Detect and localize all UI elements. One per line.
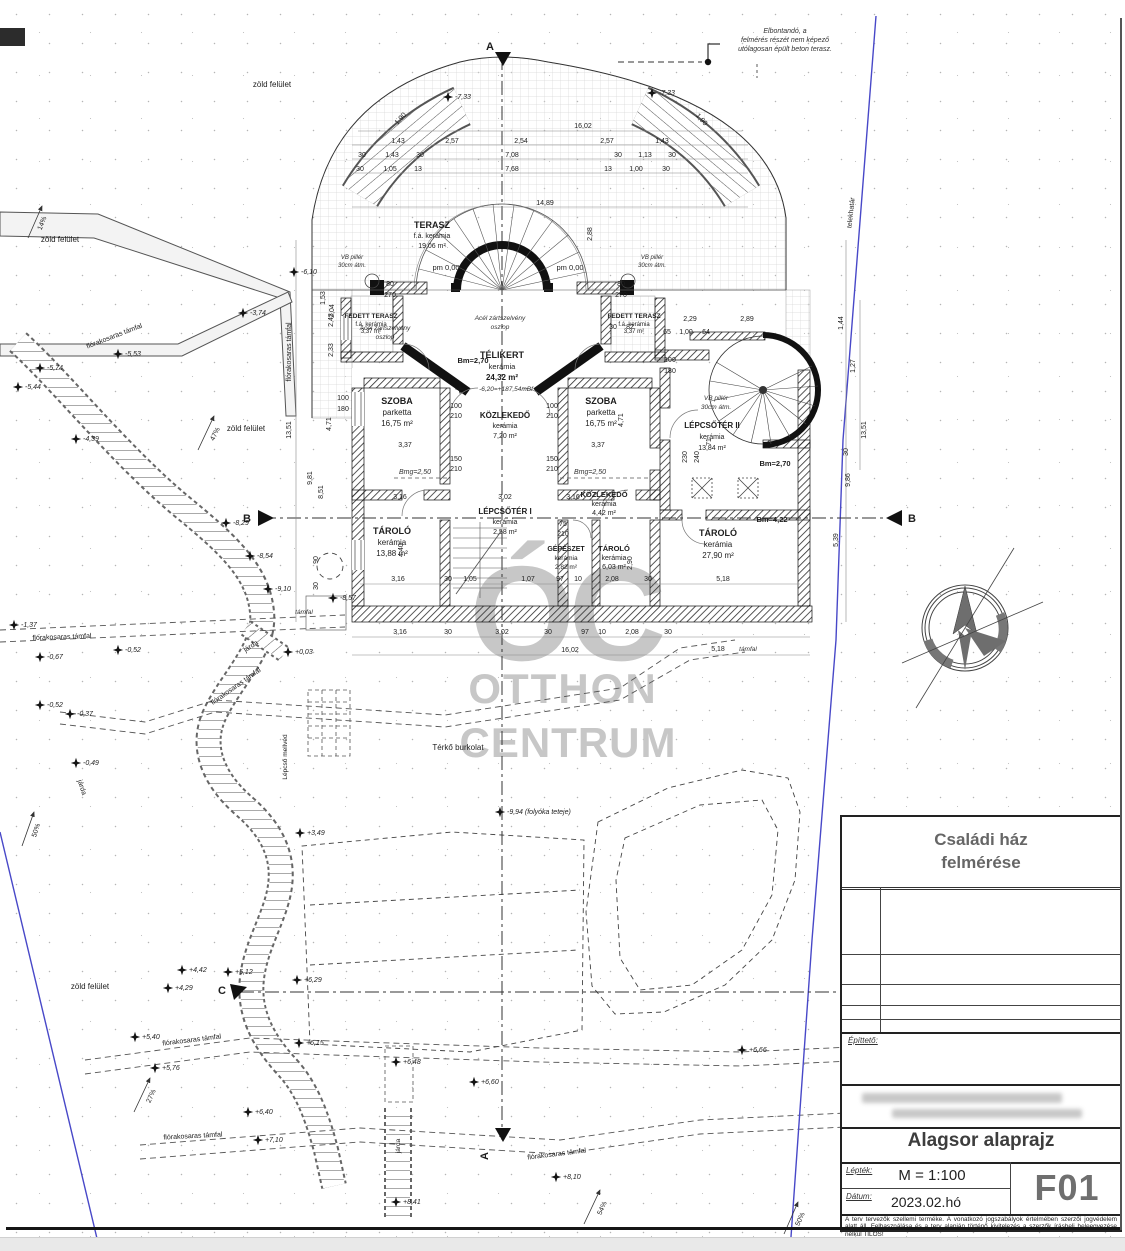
svg-text:71: 71 <box>706 438 713 446</box>
redacted-stamp <box>862 1093 1062 1103</box>
svg-text:4,40: 4,40 <box>398 543 405 557</box>
svg-text:-5,44: -5,44 <box>25 384 41 391</box>
pm-level: pm 0,00 <box>432 263 459 272</box>
site-label-jarda: járda <box>75 778 87 796</box>
room-label-tarolo3: TÁROLÓ kerámia 27,90 m² <box>699 527 737 560</box>
vb-pillar-note: 30cm átm. <box>638 263 666 269</box>
svg-text:A: A <box>479 1152 491 1160</box>
svg-text:3,16: 3,16 <box>393 629 407 636</box>
svg-text:5,39: 5,39 <box>833 533 840 547</box>
site-label-zold: zöld felület <box>253 80 292 89</box>
svg-text:10: 10 <box>574 576 582 583</box>
svg-text:+6,29: +6,29 <box>304 977 322 984</box>
svg-text:75: 75 <box>559 521 567 528</box>
svg-text:1,27: 1,27 <box>850 359 857 373</box>
svg-text:-0,52: -0,52 <box>47 702 63 709</box>
svg-text:+4,42: +4,42 <box>189 967 207 974</box>
steel-column-note: oszlop <box>376 334 395 341</box>
site-label-flora: flórakosaras támfal <box>162 1033 222 1047</box>
project-title-line1: Családi ház <box>934 829 1028 852</box>
svg-text:1,44: 1,44 <box>838 316 845 330</box>
svg-text:+7,10: +7,10 <box>265 1137 283 1144</box>
svg-text:1,13: 1,13 <box>638 152 652 159</box>
svg-text:4,42 m²: 4,42 m² <box>592 510 616 517</box>
svg-text:210: 210 <box>450 413 462 420</box>
site-label-zold: zöld felület <box>71 982 110 991</box>
svg-text:16,75 m²: 16,75 m² <box>585 419 617 428</box>
svg-text:30: 30 <box>662 166 670 173</box>
svg-text:24,32 m²: 24,32 m² <box>486 373 518 382</box>
svg-text:210: 210 <box>546 413 558 420</box>
svg-text:9,81: 9,81 <box>307 471 314 485</box>
scale-label: Lépték: <box>846 1166 872 1175</box>
svg-text:-4,39: -4,39 <box>83 436 99 443</box>
svg-text:1,43: 1,43 <box>385 152 399 159</box>
svg-text:64: 64 <box>702 329 710 336</box>
site-label-zold: zöld felület <box>41 235 80 244</box>
svg-text:SZOBA: SZOBA <box>585 396 617 406</box>
svg-text:+8,10: +8,10 <box>563 1174 581 1181</box>
svg-text:7,20 m²: 7,20 m² <box>493 433 517 440</box>
svg-text:30: 30 <box>668 152 676 159</box>
svg-text:-1,37: -1,37 <box>21 622 38 629</box>
svg-text:+5,40: +5,40 <box>142 1034 160 1041</box>
svg-text:6,03 m²: 6,03 m² <box>602 564 626 571</box>
room-label-tarolo2: TÁROLÓ kerámia 6,03 m² <box>598 544 630 571</box>
svg-text:2,54: 2,54 <box>514 138 528 145</box>
svg-text:7,08: 7,08 <box>505 152 519 159</box>
svg-text:1,00: 1,00 <box>629 166 643 173</box>
svg-text:FEDETT TERASZ: FEDETT TERASZ <box>607 313 660 320</box>
svg-text:-7,33: -7,33 <box>455 94 471 101</box>
folyoka-note: -9,94 (folyóka teteje) <box>507 809 571 816</box>
svg-text:3,16: 3,16 <box>393 494 407 501</box>
svg-text:B: B <box>243 513 251 525</box>
svg-text:2,57: 2,57 <box>445 138 459 145</box>
svg-text:2,89: 2,89 <box>740 316 754 323</box>
svg-text:230: 230 <box>682 451 689 463</box>
svg-text:kerámia: kerámia <box>493 423 518 430</box>
site-label-flora: flórakosaras támfal <box>286 322 293 382</box>
svg-text:2,88: 2,88 <box>587 227 594 241</box>
svg-text:2,57: 2,57 <box>600 138 614 145</box>
scale-value: M = 1:100 <box>872 1167 992 1184</box>
svg-text:150: 150 <box>546 456 558 463</box>
svg-text:B: B <box>908 513 916 525</box>
svg-text:1,53: 1,53 <box>320 291 327 305</box>
svg-text:3,02: 3,02 <box>498 494 512 501</box>
svg-text:27,90 m²: 27,90 m² <box>702 551 734 560</box>
height-note: Bm=2,70 <box>759 459 790 468</box>
north-compass-icon <box>902 548 1043 708</box>
svg-text:30: 30 <box>609 324 617 331</box>
svg-text:-6,20=+187,54mBf: -6,20=+187,54mBf <box>479 386 534 393</box>
svg-text:TÁROLÓ: TÁROLÓ <box>373 525 411 536</box>
svg-text:270: 270 <box>384 292 396 299</box>
svg-text:parketta: parketta <box>383 408 412 417</box>
svg-text:kerámia: kerámia <box>554 555 578 562</box>
svg-text:+4,29: +4,29 <box>175 985 193 992</box>
svg-text:TÁROLÓ: TÁROLÓ <box>598 544 630 553</box>
svg-text:9,86: 9,86 <box>845 473 852 487</box>
svg-text:1,05: 1,05 <box>383 166 397 173</box>
svg-text:parketta: parketta <box>587 408 616 417</box>
svg-text:100: 100 <box>546 403 558 410</box>
svg-text:65: 65 <box>663 329 671 336</box>
svg-text:+6,15: +6,15 <box>306 1040 324 1047</box>
svg-text:100: 100 <box>450 403 462 410</box>
svg-text:16,75 m²: 16,75 m² <box>381 419 413 428</box>
svg-text:30: 30 <box>843 448 850 456</box>
svg-text:13: 13 <box>604 166 612 173</box>
vb-pillar-note: VB pillér <box>704 395 729 402</box>
svg-text:kerámia: kerámia <box>592 501 617 508</box>
room-label-szoba-left: SZOBA parketta 16,75 m² <box>381 396 413 428</box>
svg-text:LÉPCSŐTÉR I: LÉPCSŐTÉR I <box>478 507 531 516</box>
svg-text:30: 30 <box>444 576 452 583</box>
slope-label: 47% <box>209 427 221 443</box>
svg-text:16,02: 16,02 <box>561 647 579 654</box>
vb-pillar-note: VB pillér <box>641 255 664 261</box>
svg-text:30: 30 <box>356 166 364 173</box>
height-note: Bmg=2,50 <box>574 469 606 476</box>
svg-text:240: 240 <box>694 451 701 463</box>
svg-text:f.á. kerámia: f.á. kerámia <box>414 233 451 240</box>
site-label-tamfal: támfal <box>295 609 313 616</box>
svg-text:10: 10 <box>598 629 606 636</box>
svg-text:80: 80 <box>386 281 394 288</box>
svg-text:KÖZLEKEDŐ: KÖZLEKEDŐ <box>580 490 627 499</box>
svg-text:19,06 m²: 19,06 m² <box>418 243 446 250</box>
svg-text:SZOBA: SZOBA <box>381 396 413 406</box>
steel-column-note: Acél zártszelvény <box>359 325 411 332</box>
svg-text:8,51: 8,51 <box>318 485 325 499</box>
svg-text:kerámia: kerámia <box>602 555 627 562</box>
svg-text:-8,57: -8,57 <box>340 595 357 602</box>
site-label-mellved: Lépcső mellvéd <box>282 734 289 780</box>
vb-pillar-note: VB pillér <box>341 255 364 261</box>
slope-label: 54% <box>597 1201 609 1217</box>
project-title-line2: felmérése <box>941 852 1020 875</box>
svg-text:+6,66: +6,66 <box>749 1047 767 1054</box>
svg-text:97: 97 <box>556 576 564 583</box>
svg-text:+0,03: +0,03 <box>295 649 313 656</box>
svg-text:-0,49: -0,49 <box>83 760 99 767</box>
site-label-telekhatar: telekhatár <box>846 197 856 229</box>
viewer-bottom-bar <box>0 1237 1125 1251</box>
project-title: Családi ház felmérése <box>842 817 1120 890</box>
svg-text:150: 150 <box>450 456 462 463</box>
svg-text:+6,40: +6,40 <box>255 1109 273 1116</box>
svg-text:2,08: 2,08 <box>625 629 639 636</box>
svg-text:-5,53: -5,53 <box>125 351 141 358</box>
svg-text:+5,12: +5,12 <box>235 969 253 976</box>
slope-label: 50% <box>31 823 42 838</box>
svg-text:-5,74: -5,74 <box>47 365 63 372</box>
svg-text:82: 82 <box>626 324 634 331</box>
svg-text:3,16: 3,16 <box>391 576 405 583</box>
sheet-frame-right <box>1120 18 1122 1230</box>
svg-text:-3,74: -3,74 <box>250 310 266 317</box>
svg-text:KÖZLEKEDŐ: KÖZLEKEDŐ <box>480 411 530 420</box>
svg-text:f.á. kerámia: f.á. kerámia <box>618 322 650 328</box>
title-block: Családi ház felmérése Építtető: Alagsor … <box>840 815 1122 1232</box>
svg-text:1,43: 1,43 <box>391 138 405 145</box>
svg-text:2,08: 2,08 <box>605 576 619 583</box>
svg-text:A: A <box>486 41 494 53</box>
svg-text:2,29: 2,29 <box>683 316 697 323</box>
svg-text:+8,41: +8,41 <box>403 1199 421 1206</box>
svg-text:1,43: 1,43 <box>655 138 669 145</box>
sheet-corner-mark <box>0 28 25 46</box>
svg-text:90: 90 <box>313 556 320 564</box>
drawing-title: Alagsor alaprajz <box>842 1130 1120 1152</box>
svg-text:3,37: 3,37 <box>591 442 605 449</box>
height-note: Bm=4,22 <box>756 515 787 524</box>
svg-text:180: 180 <box>664 368 676 375</box>
svg-text:kerámia: kerámia <box>489 362 517 371</box>
svg-text:2,58 m²: 2,58 m² <box>493 529 517 536</box>
svg-text:-7,33: -7,33 <box>659 90 675 97</box>
site-label-flora: flórakosaras támfal <box>527 1147 587 1161</box>
svg-text:2,82 m²: 2,82 m² <box>555 564 578 571</box>
pm-level: pm 0,00 <box>556 263 583 272</box>
svg-text:30: 30 <box>544 629 552 636</box>
svg-text:80: 80 <box>617 281 625 288</box>
svg-text:7,68: 7,68 <box>505 166 519 173</box>
room-label-terasz: TERASZ f.á. kerámia 19,06 m² <box>414 220 451 250</box>
site-label-tamfal: támfal <box>739 646 757 653</box>
svg-text:TÁROLÓ: TÁROLÓ <box>699 527 737 538</box>
table-divider <box>880 887 881 1032</box>
svg-text:210: 210 <box>450 466 462 473</box>
svg-text:2,33: 2,33 <box>328 343 335 357</box>
drawing-number: F01 <box>1010 1162 1124 1214</box>
svg-text:210: 210 <box>546 466 558 473</box>
svg-text:100: 100 <box>664 357 676 364</box>
svg-text:GÉPÉSZET: GÉPÉSZET <box>547 544 585 553</box>
slope-label: 50% <box>795 1212 807 1228</box>
client-label: Építtető: <box>848 1036 878 1045</box>
svg-text:kerámia: kerámia <box>704 540 733 549</box>
svg-text:+5,76: +5,76 <box>162 1065 180 1072</box>
svg-text:-6,10: -6,10 <box>301 269 317 276</box>
svg-text:30: 30 <box>444 629 452 636</box>
svg-text:30: 30 <box>614 152 622 159</box>
svg-text:C: C <box>218 985 226 997</box>
svg-text:270: 270 <box>615 292 627 299</box>
watermark-line2: CENTRUM <box>460 719 677 766</box>
svg-text:-9,10: -9,10 <box>275 586 291 593</box>
steel-column-note: Acél zártszelvény <box>474 315 526 322</box>
site-label-flora: flórakosaras támfal <box>163 1131 223 1141</box>
svg-text:2,90: 2,90 <box>627 556 634 570</box>
svg-text:-0,52: -0,52 <box>125 647 141 654</box>
svg-text:16,02: 16,02 <box>574 123 592 130</box>
site-label-zold: zöld felület <box>227 424 266 433</box>
room-label-szoba-right: SZOBA parketta 16,75 m² <box>585 396 617 428</box>
room-label-tarolo1: TÁROLÓ kerámia 13,88 m² <box>373 525 411 558</box>
svg-text:4,71: 4,71 <box>326 417 333 431</box>
svg-text:LÉPCSŐTÉR II: LÉPCSŐTÉR II <box>684 421 740 430</box>
svg-text:3,37: 3,37 <box>398 442 412 449</box>
svg-text:30: 30 <box>644 576 652 583</box>
svg-text:+6,60: +6,60 <box>481 1079 499 1086</box>
svg-text:1,05: 1,05 <box>463 576 477 583</box>
svg-text:5,18: 5,18 <box>716 576 730 583</box>
svg-text:97: 97 <box>581 629 589 636</box>
svg-text:-0,67: -0,67 <box>47 654 64 661</box>
date-value: 2023.02.hó <box>866 1194 986 1210</box>
demolish-note: felmérés részét nem képező <box>741 37 829 44</box>
site-label-terko: Térkő burkolat <box>432 743 484 752</box>
demolish-note: utólagosan épült beton terasz. <box>738 46 832 53</box>
svg-text:3,02: 3,02 <box>495 629 509 636</box>
svg-text:13,51: 13,51 <box>286 421 293 439</box>
architectural-drawing-sheet: ÓC OTTHON CENTRUM <box>0 0 1125 1251</box>
svg-text:30: 30 <box>358 152 366 159</box>
svg-text:1,07: 1,07 <box>521 576 535 583</box>
svg-text:100: 100 <box>337 395 349 402</box>
vb-pillar-note: 30cm átm. <box>701 404 732 411</box>
svg-text:30: 30 <box>416 152 424 159</box>
slope-label: 27% <box>146 1089 158 1105</box>
svg-text:+3,49: +3,49 <box>307 830 325 837</box>
vb-pillar-note: 30cm átm. <box>338 263 366 269</box>
height-note: Bmg=2,50 <box>399 469 431 476</box>
svg-text:1,00: 1,00 <box>679 329 693 336</box>
svg-text:13,51: 13,51 <box>861 421 868 439</box>
site-label-jarda: járda <box>395 1138 402 1154</box>
watermark-line1: OTTHON <box>468 665 657 712</box>
svg-text:-0,37: -0,37 <box>77 711 94 718</box>
height-note: Bm=2,70 <box>457 356 488 365</box>
svg-text:13: 13 <box>414 166 422 173</box>
svg-text:kerámia: kerámia <box>493 519 518 526</box>
svg-text:210: 210 <box>557 531 569 538</box>
redacted-stamp <box>892 1109 1082 1118</box>
svg-text:30: 30 <box>664 629 672 636</box>
site-label-flora: flórakosaras támfal <box>32 633 92 642</box>
svg-text:TERASZ: TERASZ <box>414 220 451 230</box>
svg-text:5,18: 5,18 <box>711 646 725 653</box>
sheet-frame-bottom <box>6 1227 1122 1230</box>
svg-text:30: 30 <box>313 582 320 590</box>
svg-text:2,04: 2,04 <box>329 304 336 318</box>
svg-text:14,89: 14,89 <box>536 200 554 207</box>
svg-text:3,16: 3,16 <box>566 494 580 501</box>
svg-text:-8,54: -8,54 <box>257 553 273 560</box>
svg-text:4,71: 4,71 <box>618 413 625 427</box>
svg-text:+6,48: +6,48 <box>403 1059 421 1066</box>
steel-column-note: oszlop <box>491 324 510 331</box>
svg-text:FEDETT TERASZ: FEDETT TERASZ <box>344 313 397 320</box>
svg-text:180: 180 <box>337 406 349 413</box>
demolish-note: Elbontandó, a <box>763 28 806 35</box>
